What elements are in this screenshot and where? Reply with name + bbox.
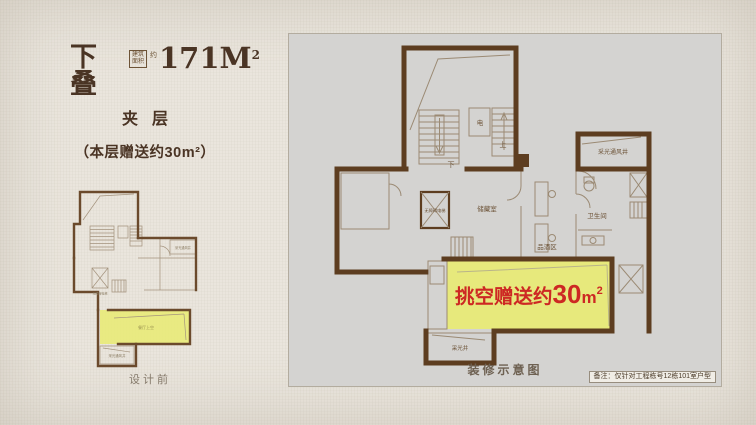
room-label-up: 上 — [500, 140, 507, 149]
room-label-elevator: 电 — [477, 118, 484, 127]
area-value: 171M2 — [159, 44, 260, 73]
room-label-light-well-small: 采光通风井 — [109, 353, 127, 358]
schematic-wall-protrusion — [516, 154, 529, 167]
room-label-light-well: 采光井 — [452, 344, 469, 352]
schematic-plan-drawing: 电 上 下 采光通风井 卫生间 储藏室 品酒区 无障碍电梯 采光井 挑空赠送约3… — [289, 34, 721, 386]
room-label-storage: 储藏室 — [477, 204, 497, 213]
before-plan-drawing: 采光通风井 无障碍电梯 餐厅上空 采光通风井 — [60, 182, 220, 372]
area-approx: 约 — [150, 50, 157, 60]
room-label-vent-well-small: 采光通风井 — [175, 245, 191, 250]
room-label-wine-area: 品酒区 — [537, 243, 557, 251]
before-plan-caption: 设计前 — [90, 371, 210, 387]
highlight-gift-sup: 2 — [597, 285, 603, 297]
mezzanine-label: 夹层 — [70, 105, 220, 129]
area-box-line2: 面积 — [132, 58, 144, 65]
schematic-panel: 电 上 下 采光通风井 卫生间 储藏室 品酒区 无障碍电梯 采光井 挑空赠送约3… — [288, 33, 722, 387]
bonus-note: （本层赠送约30m²） — [40, 141, 250, 162]
highlight-gift-unit: m — [581, 288, 596, 307]
page-root: 下叠 建筑 面积 约 171M2 夹层 （本层赠送约30m²） — [0, 0, 756, 425]
room-label-access-elevator: 无障碍电梯 — [425, 207, 446, 214]
area-superscript: 2 — [252, 48, 260, 62]
title-type: 下叠 — [70, 44, 123, 98]
room-label-bathroom: 卫生间 — [587, 211, 607, 220]
highlight-gift-value: 30 — [553, 279, 582, 309]
room-label-vent-well: 采光通风井 — [598, 148, 628, 156]
room-label-void: 餐厅上空 — [138, 324, 154, 330]
room-label-access-elevator-small: 无障碍电梯 — [92, 291, 107, 296]
highlight-gift-prefix: 挑空赠送约 — [455, 285, 553, 308]
title-area-box: 建筑 面积 — [129, 50, 147, 68]
note-box: 备注：仅针对工程栋号12栋101室户型 — [589, 371, 716, 383]
plan-title: 下叠 建筑 面积 约 171M2 — [70, 44, 260, 98]
room-label-down: 下 — [448, 161, 455, 169]
